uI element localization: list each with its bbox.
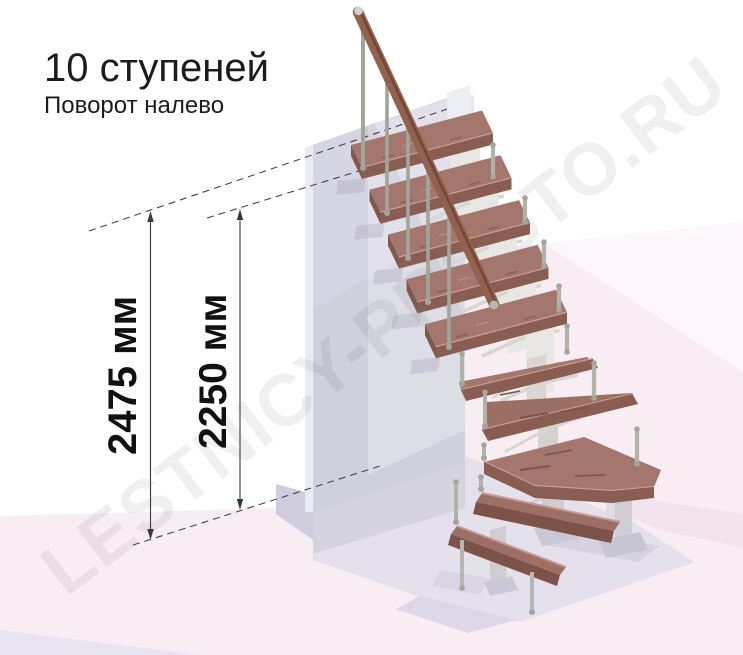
svg-text:2250 мм: 2250 мм [192,294,235,449]
svg-text:Поворот налево: Поворот налево [44,92,224,119]
svg-text:10 ступеней: 10 ступеней [44,46,269,90]
svg-text:2475 мм: 2475 мм [101,296,145,455]
